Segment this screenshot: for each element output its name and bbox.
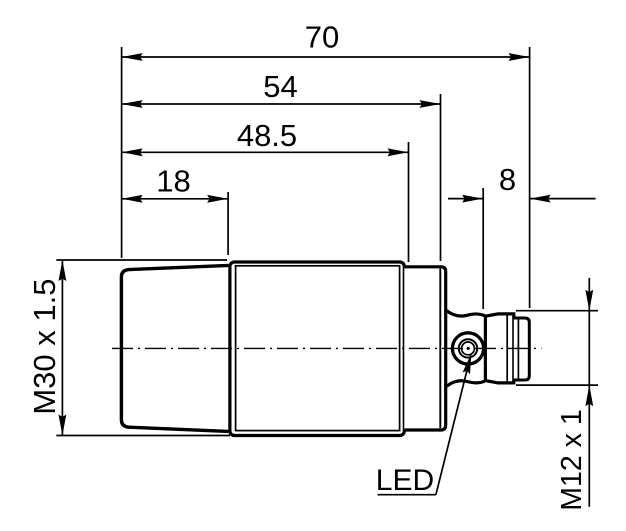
svg-text:LED: LED xyxy=(376,464,434,497)
svg-text:18: 18 xyxy=(156,164,190,199)
svg-text:54: 54 xyxy=(263,69,297,104)
svg-text:M12 x 1: M12 x 1 xyxy=(556,409,588,510)
svg-text:70: 70 xyxy=(305,20,339,55)
svg-text:M30 x 1.5: M30 x 1.5 xyxy=(27,279,62,415)
svg-text:8: 8 xyxy=(499,162,516,197)
svg-text:48.5: 48.5 xyxy=(237,118,297,153)
